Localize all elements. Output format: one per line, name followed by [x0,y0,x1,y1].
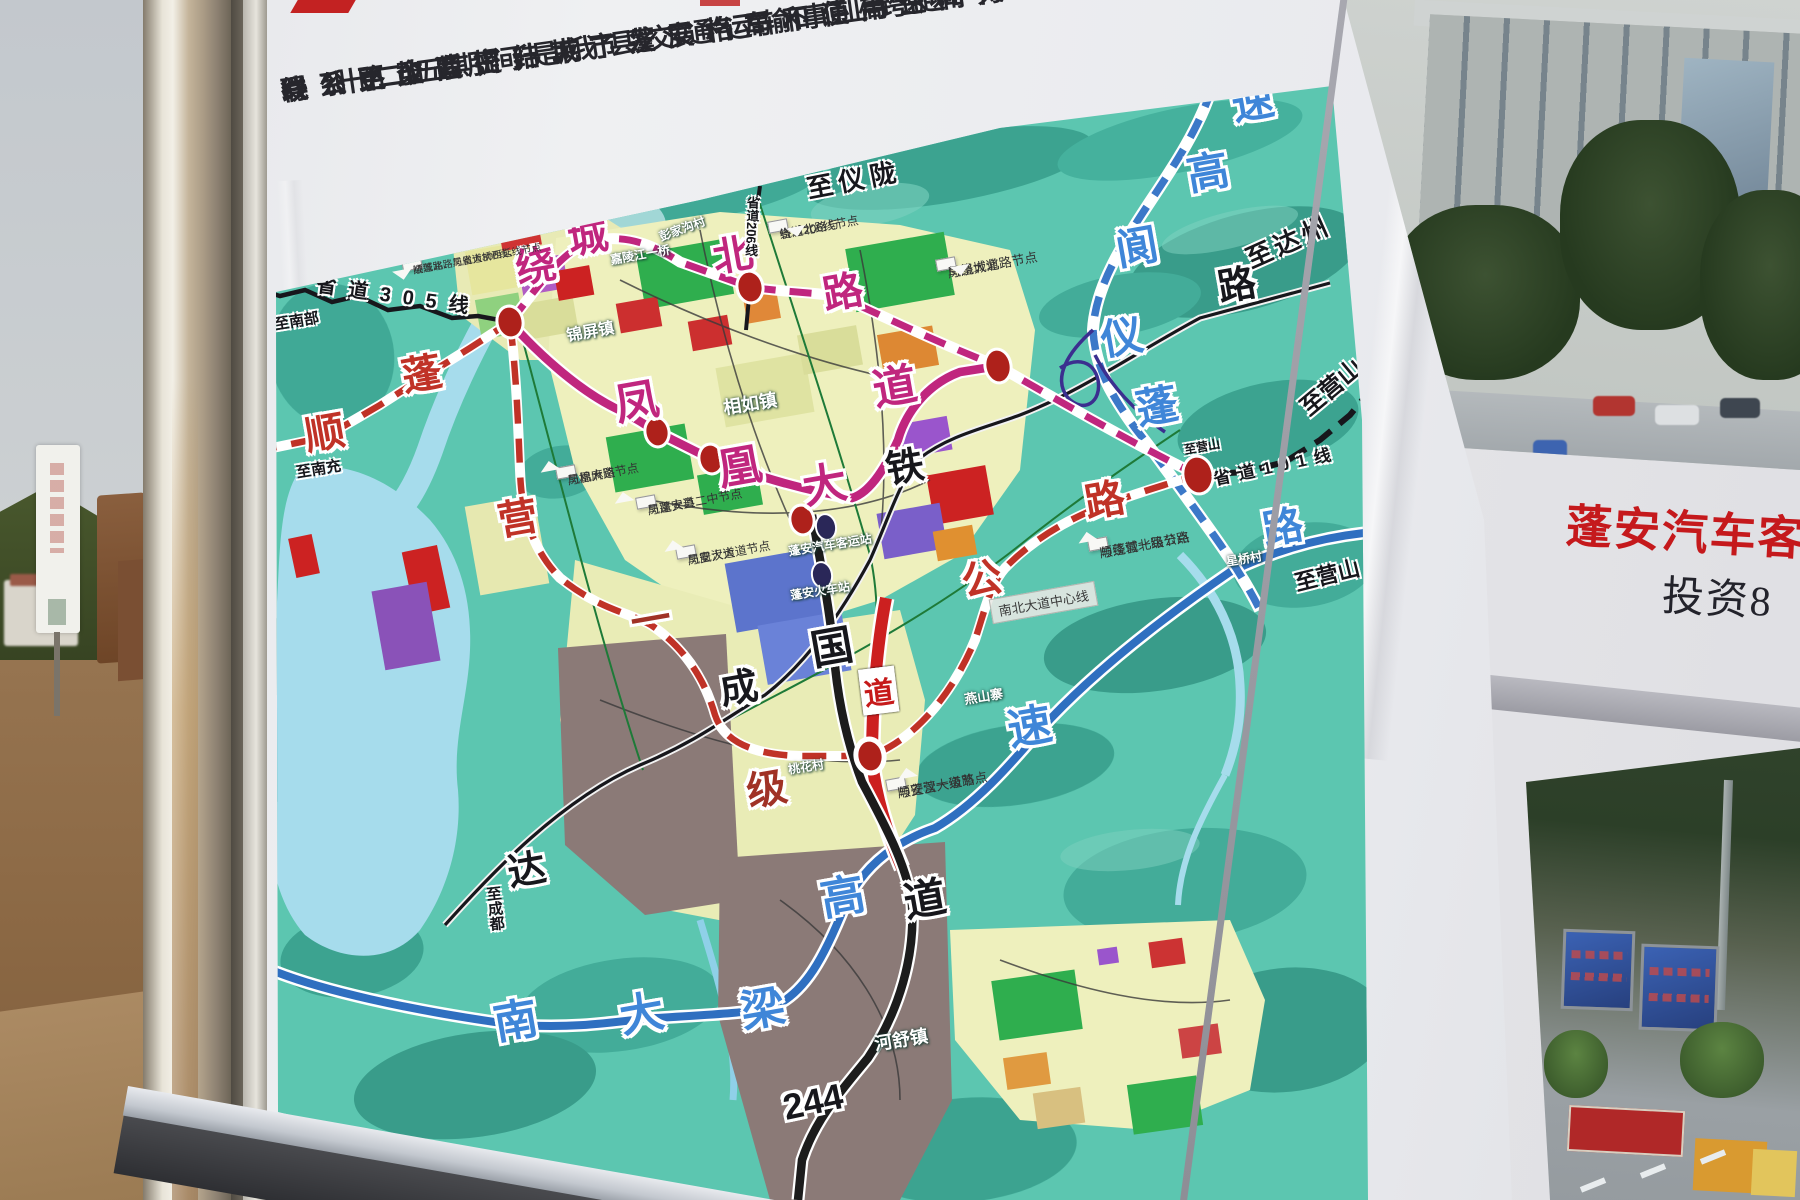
road-label-char: 高 [1184,149,1233,198]
railway-label-char: 达 [505,849,549,893]
frame-column-gap [231,0,243,1200]
frame-column-edge [243,0,267,1200]
road-label-char: 速 [1005,703,1056,754]
callout-node-mianma: 凤凰大道 与棉麻路节点 [555,464,577,479]
callout-node-s206: 绕城北路与 省道206线节点 [767,218,789,233]
photo-car-white [1655,405,1699,425]
photo-billboard-blue [1561,929,1636,1011]
photo-light-pole [1716,780,1733,1010]
photo-tree [1544,1030,1608,1098]
roadside-sign-pole [54,632,60,716]
road-label-char: 公 [959,557,1005,603]
callout-node-spy-ring: 顺蓬营一级公路 与绕城北路节点 [1087,536,1109,551]
roadside-sign [36,445,80,633]
railway-label-char: 成 [717,667,761,711]
road-label-char: 仪 [1098,314,1147,363]
road-label-char: 级 [744,767,790,813]
road-label-char: 路 [820,270,866,316]
callout-node-anhan: 凤凰大道 与安汉大道节点 [675,544,697,559]
road-label-char: 南 [491,997,542,1048]
photo-sign-yellow [1751,1149,1797,1197]
road-label-char: 营 [495,496,541,542]
road-label-char: 蓬 [399,352,445,398]
callout-node-spy-anhan: 顺蓬营一级路 与安汉大道节点 [885,776,907,791]
railway-label-char: 铁 [883,446,927,490]
road-label-char: 道 [858,666,899,716]
road-label-char: 梁 [738,985,789,1036]
route-sign-s206: 省道206线 [741,196,762,257]
callout-node-erzhong: 凤凰大道 与蓬安县二中节点 [635,494,657,509]
road-label-char: 道 [901,876,950,925]
road-label-char: 道 [870,363,921,414]
road-label-char: 国 [808,624,857,673]
road-label-char: 高 [818,873,869,924]
photo-of-planning-map-board: 蓬安汽车客 投资8 十二五期间是我县交通运输事业跨越 线公路改造，结束了蓬安汽车… [0,0,1800,1200]
callout-node-ringroad: 凤凰大道 与绕城北路节点 [935,256,957,271]
road-label-char: 顺 [302,411,348,457]
photo-tree [1680,1022,1764,1098]
photo-trees [1700,190,1800,380]
road-label-char: 大 [617,990,668,1041]
road-label-char: 一 [628,598,674,644]
photo-lane-marking [1580,1177,1606,1192]
road-label-char: 蓬 [1133,383,1182,432]
photo-billboard-blue [1639,944,1720,1033]
road-label-char: 阆 [1113,224,1162,273]
road-label-char: 大 [800,461,851,512]
road-label-char: 路 [1082,478,1128,524]
photo-lane-marking [1640,1163,1666,1178]
photo-car-red [1593,396,1635,416]
photo-banner-red [1567,1105,1685,1157]
photo-car-dark [1720,398,1760,418]
road-label-char: 凤 [612,378,663,429]
cut-red-banner [290,0,356,13]
paragraph-line: 得到了全面提升。 [278,27,593,110]
frame-column-reflection [172,380,198,1200]
